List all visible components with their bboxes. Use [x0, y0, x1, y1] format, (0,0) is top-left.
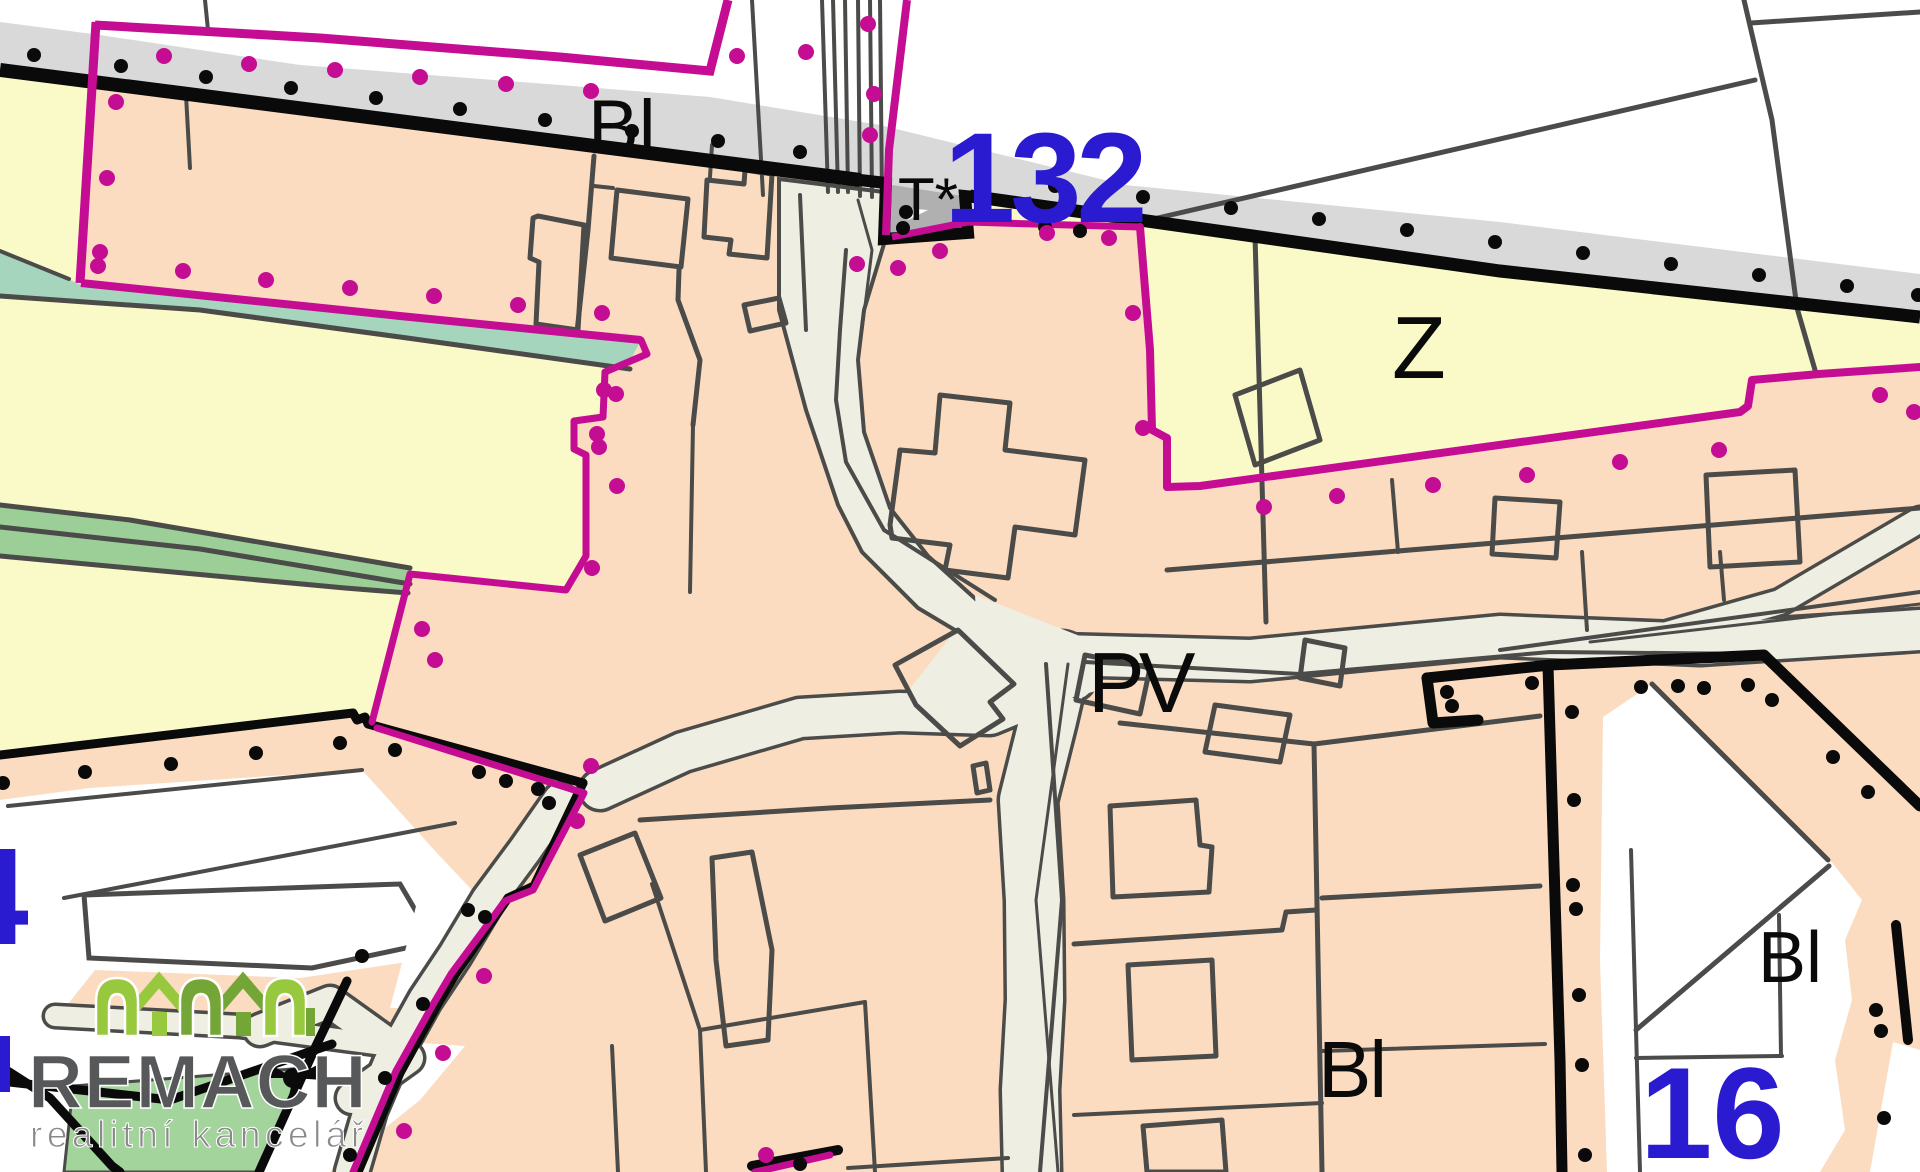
svg-text:16: 16 [1640, 1040, 1785, 1172]
svg-text:Bl: Bl [588, 85, 656, 170]
svg-text:132: 132 [944, 107, 1143, 250]
svg-text:REMACH: REMACH [28, 1040, 368, 1125]
svg-text:Z: Z [1392, 298, 1446, 397]
svg-text:realitní kancelář: realitní kancelář [30, 1114, 368, 1155]
svg-text:Bl: Bl [1758, 918, 1822, 998]
svg-text:4: 4 [0, 820, 29, 974]
svg-text:Bl: Bl [1318, 1025, 1385, 1114]
svg-text:PV: PV [1088, 636, 1196, 731]
